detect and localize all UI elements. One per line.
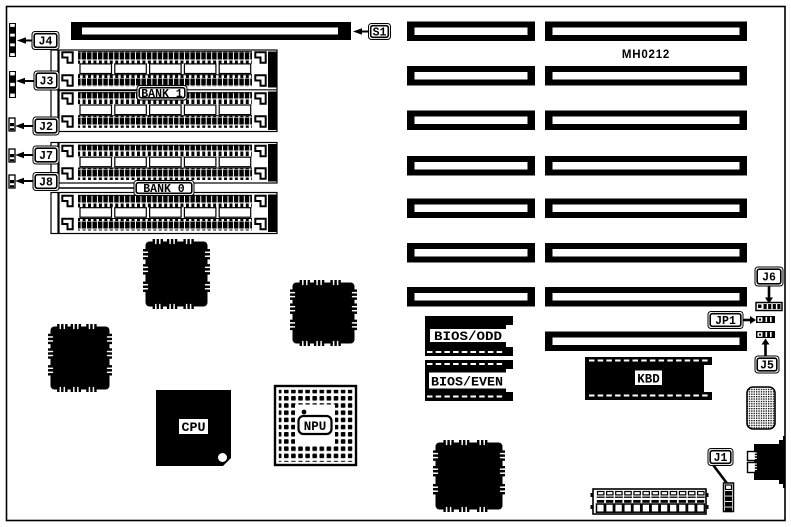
svg-text:J1: J1: [714, 452, 728, 465]
svg-text:JP1: JP1: [715, 315, 736, 328]
svg-text:CPU: CPU: [182, 421, 206, 435]
svg-text:J3: J3: [40, 76, 54, 89]
svg-text:J7: J7: [39, 150, 53, 163]
svg-text:NPU: NPU: [304, 420, 327, 434]
svg-text:J2: J2: [39, 121, 53, 134]
svg-text:S1: S1: [373, 27, 387, 40]
svg-text:J5: J5: [760, 360, 774, 373]
svg-text:J8: J8: [39, 177, 53, 190]
svg-text:BIOS/EVEN: BIOS/EVEN: [431, 376, 503, 390]
svg-text:BANK 1: BANK 1: [141, 88, 183, 101]
svg-text:J6: J6: [762, 272, 776, 285]
svg-text:BIOS/ODD: BIOS/ODD: [434, 330, 503, 344]
svg-text:KBD: KBD: [637, 373, 660, 387]
svg-text:J4: J4: [39, 36, 53, 49]
svg-text:BANK 0: BANK 0: [143, 183, 185, 196]
svg-text:MH0212: MH0212: [622, 49, 670, 61]
